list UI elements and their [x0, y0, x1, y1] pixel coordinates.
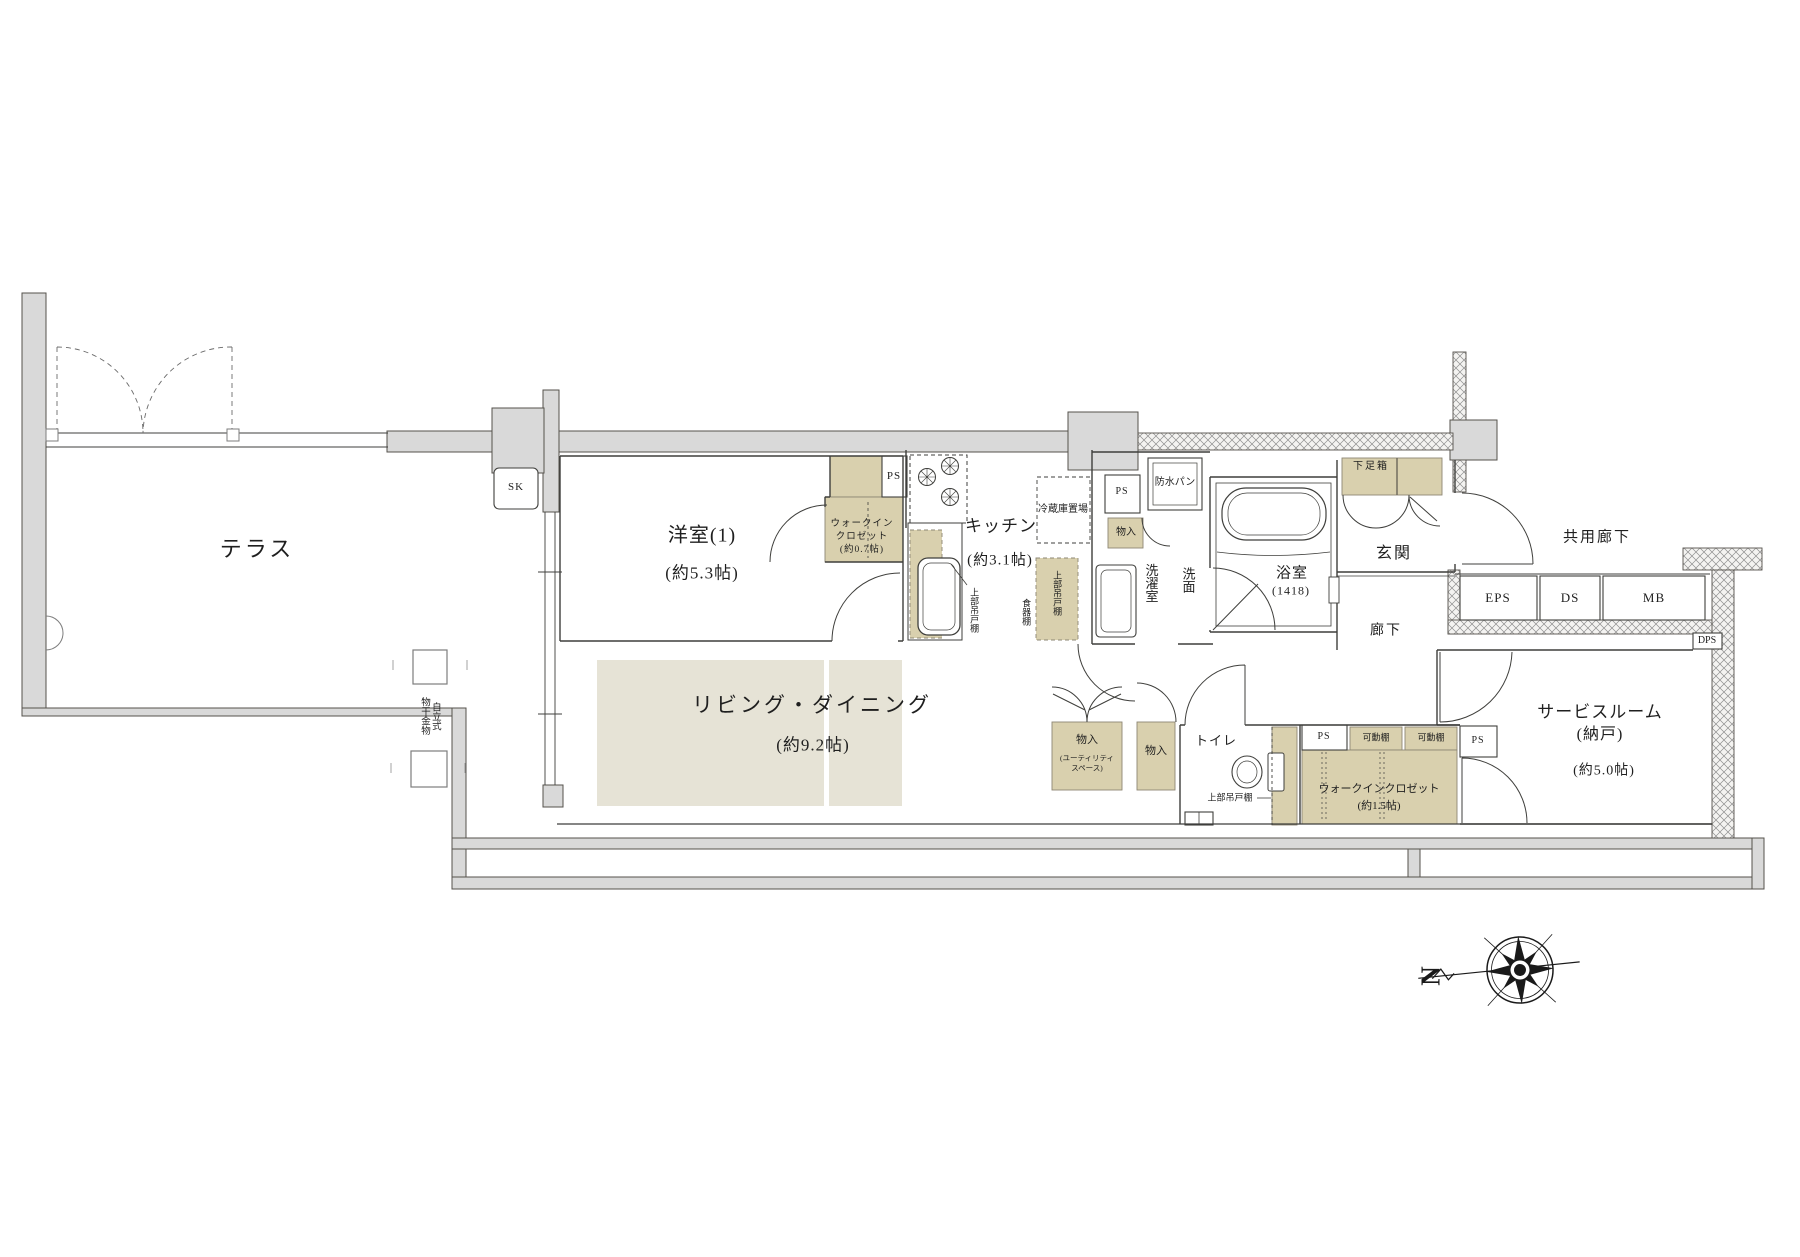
- compass-north-label: N: [1416, 966, 1447, 986]
- laundry-door: [1142, 518, 1170, 546]
- label-wic15-size: (約1.5帖): [1357, 800, 1400, 814]
- shoe-box-doors: [1343, 495, 1440, 528]
- label-service-size: (約5.0帖): [1573, 762, 1635, 780]
- label-monoire-utility: 物入: [1076, 734, 1098, 748]
- label-ps3: PS: [1317, 731, 1330, 744]
- hall-closet-door: [1137, 683, 1176, 722]
- label-service-sub: (納戸): [1577, 725, 1624, 745]
- wic07-door: [770, 505, 827, 562]
- label-monoire-hall: 物入: [1145, 745, 1167, 759]
- label-ps1: PS: [887, 470, 901, 484]
- label-shelf2: 可動棚: [1417, 732, 1444, 743]
- label-ds: DS: [1561, 590, 1580, 606]
- label-ps4: PS: [1471, 735, 1484, 748]
- label-dps: DPS: [1698, 635, 1716, 648]
- label-bathroom-size: (1418): [1272, 584, 1310, 599]
- label-fridge: 冷蔵庫置場: [1038, 504, 1088, 517]
- hall-door: [1078, 644, 1135, 701]
- vanity: [1096, 565, 1136, 637]
- label-eps: EPS: [1485, 590, 1510, 606]
- utility-closet-doors: [1052, 687, 1122, 722]
- toilet-door: [1185, 665, 1245, 725]
- label-western1-size: (約5.3帖): [665, 562, 739, 583]
- label-bathroom: 浴室: [1276, 565, 1308, 584]
- kitchen-sink: [918, 558, 960, 635]
- label-shelf1: 可動棚: [1362, 732, 1389, 743]
- label-hallway: 廊下: [1370, 622, 1402, 640]
- entrance-door: [1462, 493, 1533, 564]
- label-kitchen: キッチン: [965, 515, 1037, 536]
- label-waterproof-pan: 防水パン: [1155, 477, 1196, 490]
- floor-plan-drawing: [0, 0, 1800, 1257]
- western1-door: [832, 573, 900, 641]
- label-ps2: PS: [1115, 486, 1128, 499]
- label-cupboard: 食器棚: [1021, 599, 1031, 626]
- stove-burners: [919, 458, 959, 506]
- drying-pole-base: [411, 751, 447, 787]
- label-service: サービスルーム: [1537, 701, 1663, 722]
- toilet-tank: [1268, 753, 1284, 791]
- drying-pole-base: [413, 650, 447, 684]
- label-sk: SK: [508, 481, 524, 495]
- terrace-items: [46, 429, 467, 787]
- service-room-door: [1440, 652, 1512, 722]
- label-entrance: 玄関: [1376, 544, 1412, 564]
- wic07-area: [830, 456, 882, 497]
- label-upper-cab-cupboard: 上部吊戸棚: [1052, 571, 1062, 616]
- terrace-gate: [57, 347, 232, 433]
- label-shoe-box: 下足箱: [1353, 461, 1389, 474]
- bathroom-door: [1213, 568, 1275, 630]
- label-washroom: 洗面: [1180, 567, 1195, 593]
- label-toilet: トイレ: [1195, 733, 1237, 749]
- label-drying-pole: 自立式 物干金物: [418, 697, 440, 735]
- label-monoire-utility-sub: (ユーティリティ スペース): [1060, 753, 1114, 773]
- label-terrace: テラス: [220, 535, 295, 563]
- label-common-corridor: 共用廊下: [1563, 529, 1631, 548]
- label-upper-cab-kitchen: 上部吊戸棚: [969, 588, 979, 633]
- living-dining-floor: [597, 660, 902, 806]
- label-living-size: (約9.2帖): [776, 734, 850, 755]
- label-upper-cab-toilet: 上部吊戸棚: [1207, 792, 1252, 803]
- label-laundry: 洗濯室: [1143, 564, 1158, 603]
- label-western1: 洋室(1): [668, 524, 736, 549]
- label-wic15: ウォークインクロゼット: [1319, 783, 1440, 797]
- floor-plan: テラス 洋室(1) (約5.3帖) ウォークイン クロゼット (約0.7帖) P…: [0, 0, 1800, 1257]
- wic15-door: [1462, 758, 1527, 823]
- label-monoire-laundry: 物入: [1116, 527, 1136, 540]
- label-living: リビング・ダイニング: [692, 692, 932, 718]
- label-wic07: ウォークイン クロゼット (約0.7帖): [830, 518, 893, 556]
- label-mb: MB: [1643, 590, 1665, 606]
- label-kitchen-size: (約3.1帖): [967, 552, 1033, 571]
